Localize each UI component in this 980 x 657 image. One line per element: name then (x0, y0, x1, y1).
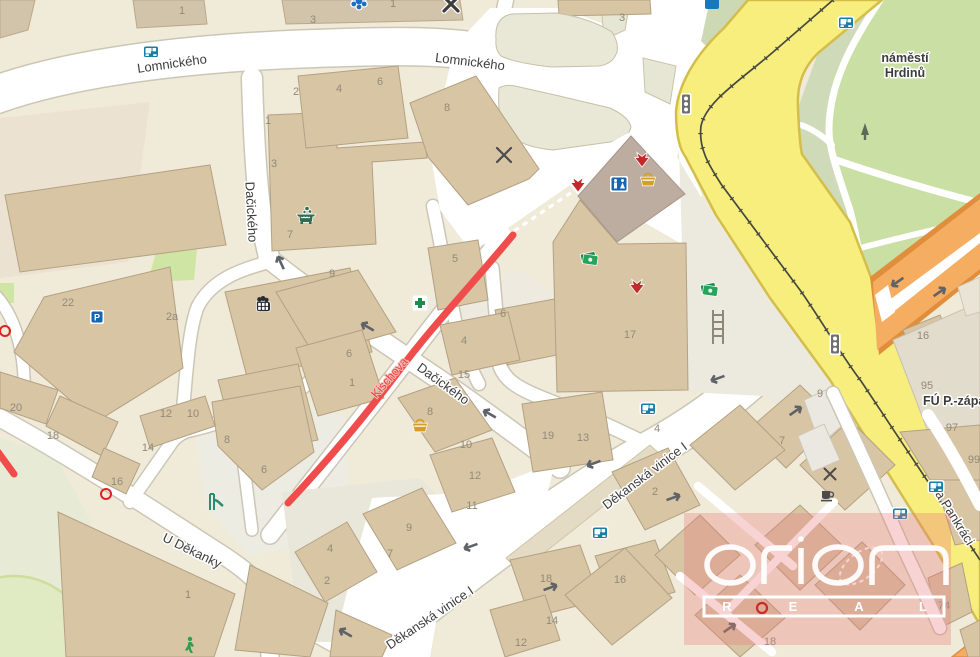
svg-text:1: 1 (185, 589, 191, 601)
svg-text:19: 19 (542, 430, 554, 442)
svg-text:97: 97 (946, 422, 958, 434)
svg-text:A: A (854, 599, 864, 614)
svg-text:P: P (94, 313, 100, 323)
svg-text:4: 4 (327, 543, 333, 555)
svg-text:E: E (789, 599, 798, 614)
svg-text:R: R (722, 599, 732, 614)
svg-text:2a: 2a (166, 311, 179, 323)
svg-text:1: 1 (349, 377, 355, 389)
svg-text:18: 18 (47, 430, 59, 442)
svg-text:18: 18 (540, 573, 552, 585)
svg-text:6: 6 (346, 348, 352, 360)
svg-text:7: 7 (387, 548, 393, 560)
svg-text:L: L (919, 599, 927, 614)
svg-text:2: 2 (324, 575, 330, 587)
svg-text:4: 4 (654, 423, 660, 435)
svg-text:10: 10 (187, 408, 199, 420)
svg-text:3: 3 (271, 158, 277, 170)
svg-text:3: 3 (619, 12, 625, 24)
svg-text:náměstí: náměstí (881, 51, 929, 65)
svg-text:6: 6 (261, 464, 267, 476)
svg-text:12: 12 (160, 408, 172, 420)
svg-text:9: 9 (406, 522, 412, 534)
svg-text:7: 7 (779, 435, 785, 447)
svg-text:12: 12 (469, 470, 481, 482)
svg-text:11: 11 (466, 500, 477, 512)
svg-text:12: 12 (515, 637, 527, 649)
svg-text:2: 2 (293, 86, 299, 98)
svg-text:9: 9 (817, 388, 823, 400)
svg-text:13: 13 (577, 432, 589, 444)
svg-text:2: 2 (652, 486, 658, 498)
svg-text:1: 1 (265, 115, 271, 127)
svg-text:95: 95 (921, 380, 933, 392)
svg-text:10: 10 (460, 439, 472, 451)
svg-text:16: 16 (111, 476, 123, 488)
svg-text:7: 7 (287, 229, 293, 241)
svg-text:14: 14 (546, 615, 558, 627)
svg-text:20: 20 (10, 402, 22, 414)
svg-text:14: 14 (142, 442, 154, 454)
svg-text:17: 17 (624, 329, 636, 341)
svg-text:4: 4 (336, 83, 342, 95)
svg-text:5: 5 (452, 253, 458, 265)
svg-text:6: 6 (377, 76, 383, 88)
svg-text:16: 16 (917, 330, 929, 342)
svg-text:3: 3 (310, 14, 316, 26)
svg-text:8: 8 (427, 406, 433, 418)
svg-text:Dačického: Dačického (242, 181, 260, 242)
svg-text:FÚ P.-západ: FÚ P.-západ (923, 393, 980, 408)
svg-text:9: 9 (329, 268, 335, 280)
svg-text:15: 15 (458, 369, 470, 381)
svg-text:8: 8 (444, 102, 450, 114)
svg-text:99: 99 (968, 454, 980, 466)
svg-text:6: 6 (500, 308, 506, 320)
svg-text:4: 4 (461, 335, 467, 347)
svg-text:8: 8 (224, 434, 230, 446)
svg-text:1: 1 (390, 0, 396, 10)
svg-text:16: 16 (614, 574, 626, 586)
svg-text:Hrdinů: Hrdinů (885, 66, 925, 80)
svg-text:1: 1 (179, 5, 185, 17)
svg-text:22: 22 (62, 297, 74, 309)
